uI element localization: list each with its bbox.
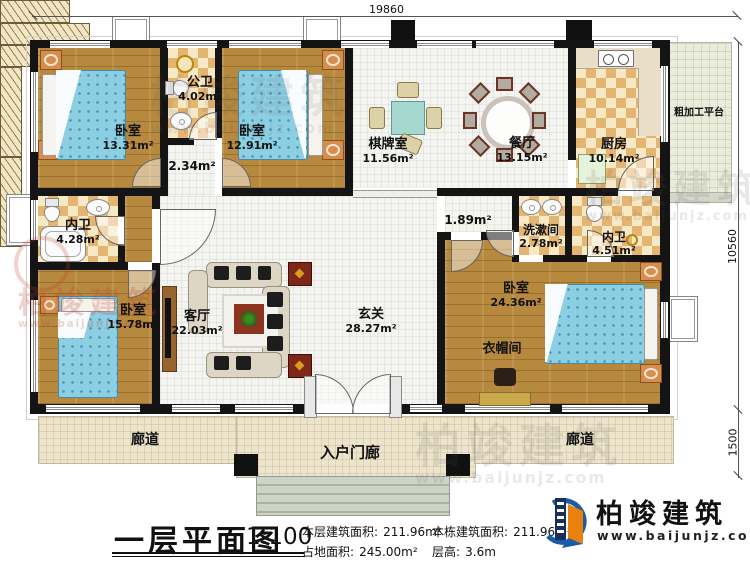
window-bottom-1 — [46, 405, 140, 412]
room-name: 厨房 — [588, 138, 639, 153]
window-bottom-6 — [562, 405, 648, 412]
wall-ibl-east-a — [118, 188, 125, 216]
room-label-washroom: 洗漱间2.78m² — [519, 224, 562, 250]
room-area: 4.02m² — [178, 91, 221, 104]
room-label-foyer: 玄关28.27m² — [345, 308, 396, 336]
window-top-3 — [229, 41, 301, 48]
room-label-small-hall: 2.34m² — [168, 160, 215, 174]
platform-edge — [668, 192, 732, 203]
bed-sheet-fold — [280, 70, 306, 158]
room-area: 2.34m² — [168, 160, 215, 174]
chair — [463, 112, 477, 129]
flue-box-1 — [391, 20, 415, 40]
room-name: 餐厅 — [496, 137, 547, 152]
sofa-cushion — [267, 336, 283, 351]
floor-vestibule — [125, 196, 152, 262]
room-area: 15.78m² — [107, 319, 158, 332]
sliding-opening — [353, 190, 437, 198]
wall-br1-east — [160, 48, 168, 188]
wall-wash-south-a — [543, 255, 587, 262]
dimension-top-value: 19860 — [366, 3, 407, 16]
window-top-4 — [341, 41, 389, 48]
bed-pillows — [42, 74, 57, 156]
stove — [598, 50, 634, 67]
flue-box-2 — [566, 20, 592, 40]
chair — [369, 107, 385, 129]
room-area: 2.78m² — [519, 238, 562, 251]
chair — [397, 82, 419, 98]
sink — [86, 199, 110, 216]
window-top-5 — [417, 41, 472, 48]
wall-washroom-west — [512, 196, 519, 232]
stat-land-area: 占地面积: 245.00m² — [302, 541, 418, 560]
stat-value: 245.00m² — [359, 545, 418, 559]
sink — [170, 112, 192, 130]
bed-pillows — [308, 74, 323, 156]
burner — [603, 54, 614, 65]
room-name: 棋牌室 — [362, 138, 413, 153]
brand-name: 柏竣建筑 — [596, 492, 728, 531]
bed-pillows — [644, 288, 658, 360]
washer-icon — [176, 55, 194, 73]
nightstand — [322, 50, 344, 70]
sink — [521, 199, 541, 215]
chair — [426, 107, 442, 129]
room-label-kitchen: 厨房10.14m² — [588, 138, 639, 166]
kitchen-counter-side — [638, 68, 661, 136]
bay-window-right — [668, 296, 698, 342]
room-area: 11.56m² — [362, 153, 413, 166]
room-name: 卧室 — [490, 282, 541, 297]
room-name: 廊道 — [131, 432, 159, 448]
wardrobe-column — [0, 67, 22, 157]
wall-washroom-east — [565, 196, 572, 262]
room-name: 内卫 — [592, 231, 635, 245]
sink — [542, 199, 562, 215]
sofa-cushion — [258, 266, 271, 280]
room-label-dining: 餐厅13.15m² — [496, 137, 547, 165]
room-area: 12.91m² — [226, 140, 277, 153]
sofa-cushion — [214, 266, 229, 280]
room-label-platform: 粗加工平台 — [674, 107, 724, 119]
nightstand — [40, 296, 59, 314]
window-bottom-3 — [235, 405, 293, 412]
sofa-cushion — [214, 356, 229, 370]
stool — [494, 368, 516, 386]
wall-br2-east — [345, 48, 353, 196]
room-name: 廊道 — [566, 432, 594, 448]
room-area: 4.28m² — [56, 234, 99, 247]
room-name: 公卫 — [178, 76, 221, 91]
room-name: 内卫 — [56, 219, 99, 234]
toilet — [586, 197, 603, 222]
window-bottom-2 — [172, 405, 220, 412]
porch-column — [446, 454, 470, 476]
chess-table — [391, 101, 425, 135]
wall-hall-west-b — [152, 263, 160, 404]
stat-label: 本层建筑面积: — [302, 525, 378, 539]
window-bottom-4 — [410, 405, 442, 412]
sofa-cushion — [236, 266, 251, 280]
dimension-line-top — [32, 16, 738, 17]
room-label-porch: 入户门廊 — [320, 444, 380, 461]
wall-mid-west — [30, 188, 168, 196]
window-left-2 — [31, 200, 38, 240]
room-area: 10.14m² — [588, 153, 639, 166]
wall-hall-west-a — [152, 188, 160, 209]
sofa-cushion — [236, 356, 251, 370]
window-left-3 — [31, 300, 38, 392]
wall-master-north-a — [445, 232, 451, 240]
room-label-bedroom-top-left: 卧室13.31m² — [102, 125, 153, 153]
side-table — [288, 262, 312, 286]
room-label-corridor-left: 廊道 — [131, 432, 159, 448]
room-name: 卧室 — [107, 304, 158, 319]
room-label-master-bedroom: 卧室24.36m² — [490, 282, 541, 310]
stat-label: 占地面积: — [302, 545, 354, 559]
room-name: 卧室 — [102, 125, 153, 140]
nightstand — [322, 140, 344, 160]
window-top-7 — [594, 41, 652, 48]
chair — [496, 77, 513, 91]
room-label-corridor-right: 廊道 — [566, 432, 594, 448]
brand-logo: 柏竣建筑 www.baijunjz.com — [540, 488, 750, 558]
window-right-1 — [661, 66, 668, 142]
entry-steps — [256, 476, 450, 516]
wall-kitchen-west — [568, 48, 576, 160]
room-area: 13.31m² — [102, 140, 153, 153]
nightstand — [640, 262, 662, 281]
sofa-cushion — [267, 314, 283, 329]
chair — [532, 112, 546, 129]
title-underline-thin — [112, 556, 304, 557]
dimension-right-value: 10560 — [726, 226, 739, 267]
room-name: 洗漱间 — [519, 224, 562, 238]
room-area: 28.27m² — [345, 323, 396, 336]
room-area: 22.03m² — [171, 325, 222, 338]
plant — [241, 311, 257, 327]
room-label-chess-room: 棋牌室11.56m² — [362, 138, 413, 166]
nightstand — [640, 364, 662, 383]
window-left-1 — [31, 72, 38, 152]
window-right-2 — [661, 302, 668, 338]
room-name: 卧室 — [226, 125, 277, 140]
nightstand — [40, 50, 62, 70]
room-label-cloakroom: 衣帽间 — [482, 343, 521, 358]
window-top-1 — [50, 41, 110, 48]
room-area: 13.15m² — [496, 152, 547, 165]
title-underline-thick — [112, 552, 304, 554]
room-name: 粗加工平台 — [674, 107, 724, 119]
brand-url: www.baijunjz.com — [597, 528, 750, 543]
window-top-2 — [167, 41, 217, 48]
wall-ibl-south — [30, 262, 128, 270]
wall-mid-east — [437, 188, 618, 196]
stat-label: 本栋建筑面积: — [432, 525, 508, 539]
room-label-inner-bath-right: 内卫4.51m² — [592, 231, 635, 257]
stat-floor-height: 层高: 3.6m — [432, 541, 496, 560]
tv — [165, 298, 171, 358]
room-label-small-corridor: 1.89m² — [444, 214, 491, 228]
window-bottom-5 — [465, 405, 550, 412]
brand-logo-icon — [540, 490, 592, 552]
side-table — [288, 354, 312, 378]
room-area: 24.36m² — [490, 297, 541, 310]
burner — [618, 54, 629, 65]
sofa-cushion — [267, 292, 283, 307]
room-label-bedroom-bottom-left: 卧室15.78m² — [107, 304, 158, 332]
room-label-bedroom-top-mid: 卧室12.91m² — [226, 125, 277, 153]
room-name: 衣帽间 — [482, 343, 521, 358]
bed-sheet-fold — [545, 284, 569, 362]
dresser — [479, 392, 531, 406]
room-area: 4.51m² — [592, 245, 635, 258]
wall-mid-center — [222, 188, 353, 196]
stat-value: 3.6m — [465, 545, 496, 559]
room-label-living: 客厅22.03m² — [171, 310, 222, 338]
room-name: 玄关 — [345, 308, 396, 323]
dimension-porch-value: 1500 — [727, 426, 740, 460]
floor-plan: 卧室13.31m² 公卫4.02m² 2.34m² 卧室12.91m² 棋牌室1… — [0, 0, 750, 566]
room-name: 入户门廊 — [320, 444, 380, 461]
bed-sheet-fold — [56, 70, 82, 158]
stat-floor-area: 本层建筑面积: 211.96m² — [302, 521, 442, 540]
stat-label: 层高: — [432, 545, 460, 559]
room-label-inner-bath-left: 内卫4.28m² — [56, 219, 99, 247]
room-label-public-bath: 公卫4.02m² — [178, 76, 221, 104]
window-top-6 — [476, 41, 554, 48]
room-name: 客厅 — [171, 310, 222, 325]
room-area: 1.89m² — [444, 214, 491, 228]
porch-column — [234, 454, 258, 476]
wall-master-west — [437, 232, 445, 404]
wardrobe — [0, 0, 70, 23]
